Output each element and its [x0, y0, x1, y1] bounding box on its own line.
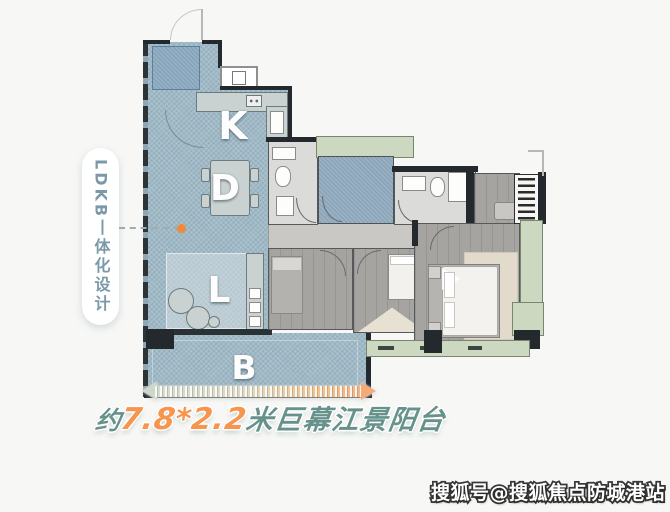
watermark: 搜狐号@搜狐焦点防城港站 — [431, 478, 665, 505]
wall — [143, 40, 170, 44]
entry-door-leaf — [201, 9, 203, 40]
pillow — [444, 272, 455, 298]
wall — [538, 172, 546, 224]
toilet-icon — [275, 166, 291, 187]
nightstand — [428, 266, 441, 279]
window-step-line — [542, 150, 544, 176]
wall — [266, 137, 318, 142]
ac-platform-top — [316, 136, 414, 158]
callout-connector-line — [119, 227, 179, 229]
wall — [218, 42, 222, 68]
ldkb-callout-label: LDKB丨体化设计 — [89, 159, 113, 314]
railing-mark — [378, 346, 394, 350]
dining-chair — [250, 194, 259, 208]
floorplan-image: K D L B LDKB丨体化设计 约 7.8*2.2 米巨幕江景阳台 搜狐号@… — [0, 0, 670, 512]
flue-inner — [232, 71, 246, 85]
desk-chair — [494, 202, 516, 220]
dining-label: D — [205, 168, 245, 209]
wall — [288, 86, 292, 144]
side-table — [208, 316, 220, 328]
living-label: L — [199, 270, 239, 311]
kitchen-label: K — [213, 104, 253, 148]
toilet-icon — [430, 177, 445, 197]
railing-mark — [468, 346, 482, 350]
wall — [220, 86, 292, 90]
entry-door-arc — [170, 9, 202, 40]
arrow-body — [155, 386, 361, 397]
washer-icon — [276, 196, 294, 216]
sink-icon — [402, 176, 426, 191]
wardrobe-rail — [518, 178, 535, 220]
pillow — [444, 302, 455, 328]
wall — [424, 330, 442, 353]
entry-cabinet — [152, 46, 200, 90]
console-item — [249, 288, 261, 299]
wall — [146, 329, 174, 349]
console-item — [249, 302, 261, 313]
sink-icon — [272, 147, 296, 160]
bedroom-2-pillow — [273, 258, 301, 270]
caption-dimensions: 7.8*2.2 — [118, 402, 248, 437]
side-balcony-strip — [520, 220, 543, 308]
kitchen-sink — [270, 111, 284, 134]
dining-chair — [250, 168, 259, 182]
wall — [412, 220, 418, 246]
callout-dot-icon — [177, 224, 186, 233]
console-item — [249, 316, 261, 327]
caption-suffix: 米巨幕江景阳台 — [244, 398, 449, 437]
balcony-caption: 约 7.8*2.2 米巨幕江景阳台 — [93, 398, 449, 438]
ldkb-callout-pill: LDKB丨体化设计 — [82, 148, 119, 325]
wall — [466, 170, 474, 225]
